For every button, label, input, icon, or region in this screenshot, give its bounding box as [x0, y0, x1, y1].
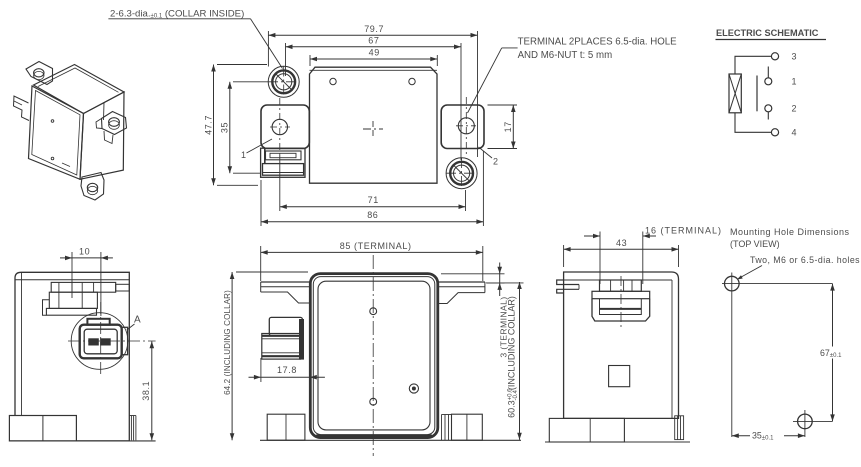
- svg-text:10: 10: [79, 246, 90, 256]
- svg-text:A: A: [134, 315, 141, 326]
- svg-text:17.8: 17.8: [277, 365, 297, 375]
- svg-text:TERMINAL 2PLACES 6.5-dia. HOLE: TERMINAL 2PLACES 6.5-dia. HOLE: [518, 36, 678, 47]
- svg-text:Mounting Hole Dimensions: Mounting Hole Dimensions: [730, 227, 850, 237]
- svg-text:2: 2: [792, 104, 797, 114]
- svg-text:35: 35: [219, 122, 229, 133]
- svg-text:67: 67: [368, 35, 379, 45]
- svg-text:1: 1: [241, 150, 246, 160]
- svg-text:85 (TERMINAL): 85 (TERMINAL): [340, 241, 412, 251]
- svg-text:38.1: 38.1: [141, 381, 151, 401]
- svg-text:4: 4: [792, 128, 797, 138]
- svg-text:ELECTRIC SCHEMATIC: ELECTRIC SCHEMATIC: [716, 28, 819, 38]
- svg-text:(TOP VIEW): (TOP VIEW): [730, 239, 780, 249]
- svg-text:17: 17: [503, 121, 513, 132]
- svg-text:43: 43: [616, 238, 627, 248]
- svg-text:2: 2: [493, 157, 498, 167]
- svg-text:86: 86: [367, 210, 378, 220]
- svg-text:2-6.3-dia.±0.1 (COLLAR INSIDE): 2-6.3-dia.±0.1 (COLLAR INSIDE): [110, 8, 244, 19]
- svg-text:71: 71: [368, 195, 379, 205]
- svg-text:16 (TERMINAL): 16 (TERMINAL): [645, 226, 722, 236]
- svg-text:79.7: 79.7: [364, 24, 384, 34]
- svg-text:1: 1: [792, 77, 797, 87]
- svg-text:49: 49: [369, 47, 380, 57]
- svg-text:AND M6-NUT t: 5 mm: AND M6-NUT t: 5 mm: [518, 50, 613, 61]
- svg-text:3: 3: [792, 52, 797, 62]
- svg-text:Two, M6 or 6.5-dia. holes: Two, M6 or 6.5-dia. holes: [750, 255, 860, 265]
- svg-text:64.2 (INCLUDING COLLAR): 64.2 (INCLUDING COLLAR): [223, 290, 232, 395]
- svg-text:47.7: 47.7: [204, 115, 214, 135]
